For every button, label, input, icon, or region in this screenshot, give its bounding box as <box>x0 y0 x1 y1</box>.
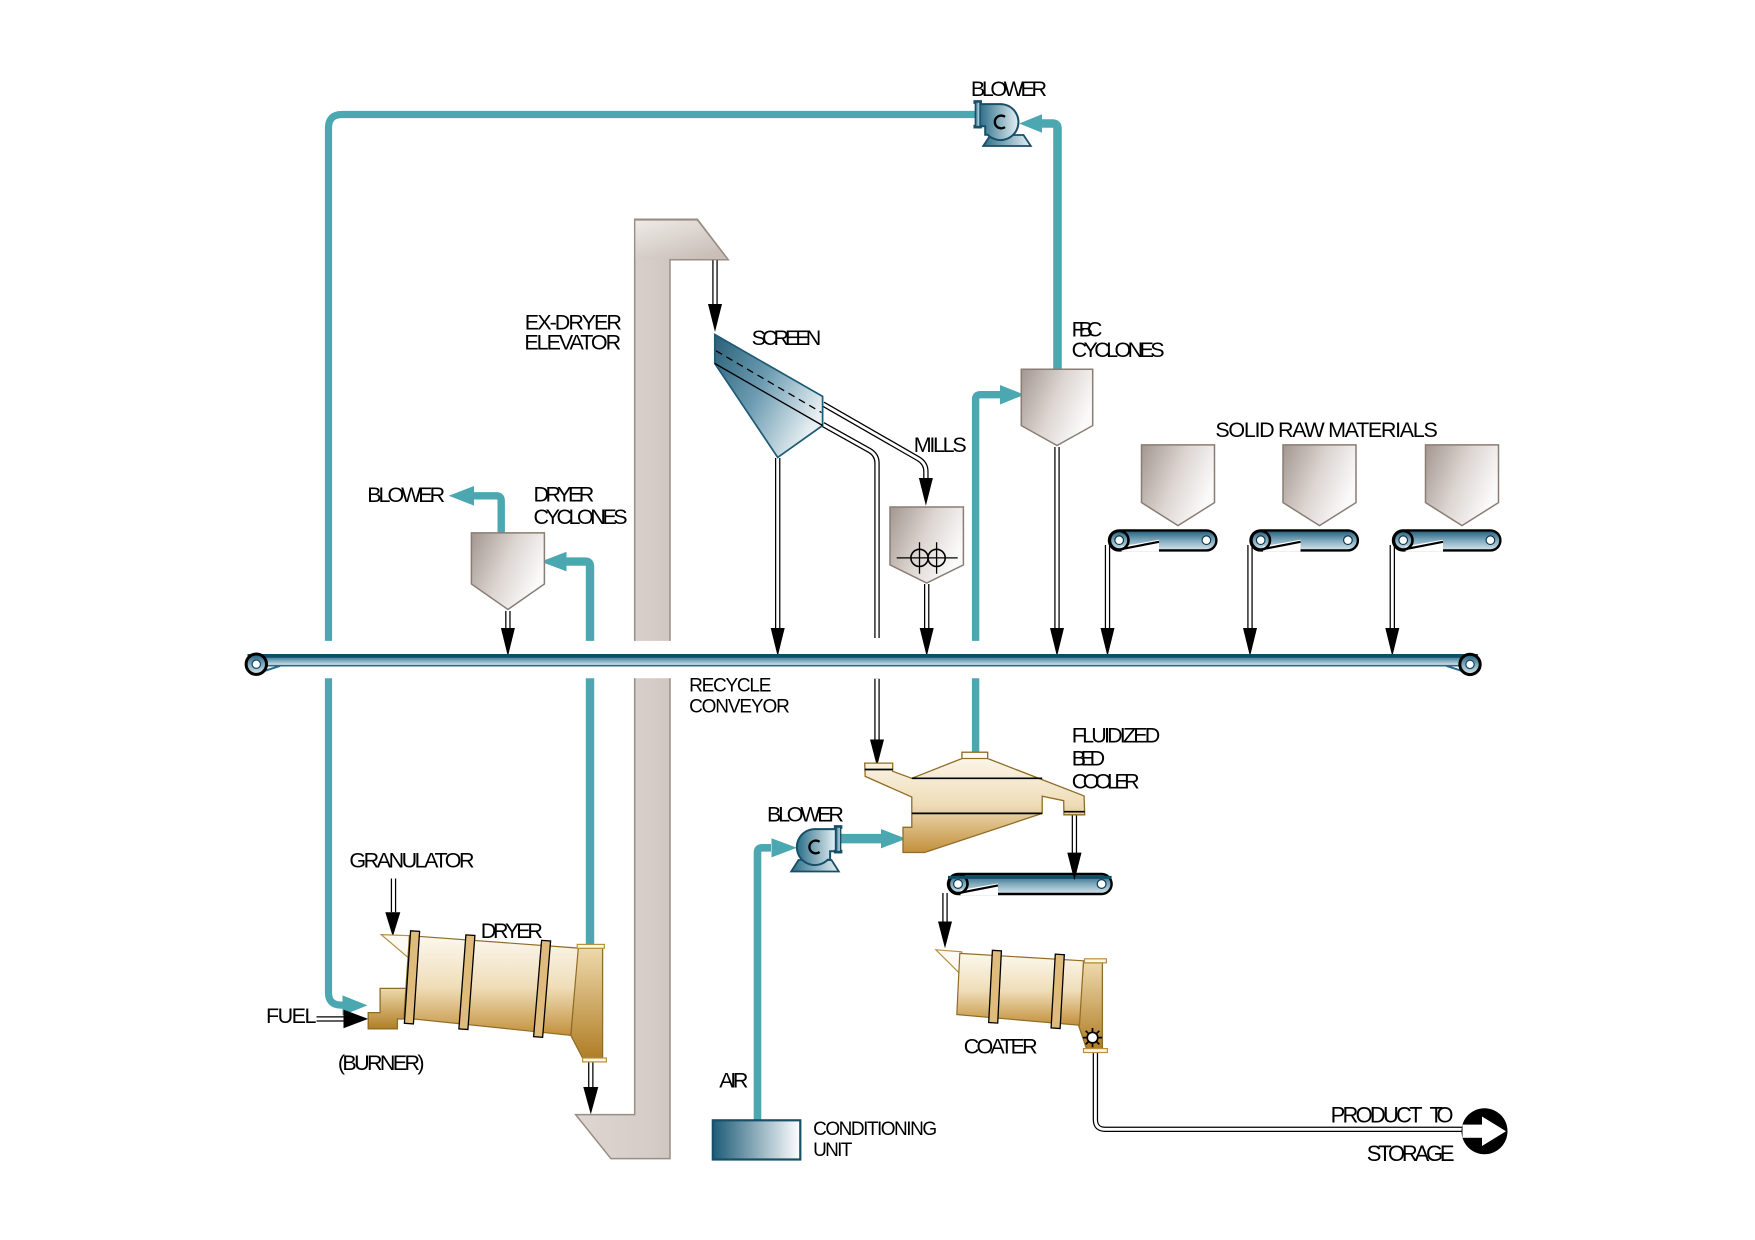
svg-text:DRYER: DRYER <box>534 482 595 506</box>
svg-text:COOLER: COOLER <box>1072 770 1140 794</box>
svg-text:BLOWER: BLOWER <box>367 483 445 507</box>
svg-text:MILLS: MILLS <box>914 433 967 457</box>
svg-text:BLOWER: BLOWER <box>971 77 1047 101</box>
svg-text:ELEVATOR: ELEVATOR <box>524 330 621 354</box>
svg-text:STORAGE: STORAGE <box>1367 1141 1455 1166</box>
svg-text:CYCLONES: CYCLONES <box>1072 338 1165 362</box>
svg-text:TO: TO <box>1430 1103 1454 1128</box>
svg-text:UNIT: UNIT <box>813 1140 853 1161</box>
svg-text:BED: BED <box>1072 746 1105 770</box>
svg-text:AIR: AIR <box>719 1069 748 1093</box>
svg-text:RECYCLE: RECYCLE <box>689 675 771 696</box>
svg-text:COATER: COATER <box>964 1035 1038 1059</box>
svg-text:(BURNER): (BURNER) <box>338 1051 425 1075</box>
svg-text:FUEL: FUEL <box>266 1004 317 1028</box>
svg-text:FLUIDIZED: FLUIDIZED <box>1072 723 1161 747</box>
svg-text:SCREEN: SCREEN <box>752 326 822 350</box>
svg-text:PRODUCT: PRODUCT <box>1331 1103 1423 1128</box>
svg-text:CONDITIONING: CONDITIONING <box>813 1119 937 1140</box>
svg-text:CONVEYOR: CONVEYOR <box>689 697 790 718</box>
svg-text:GRANULATOR: GRANULATOR <box>349 849 474 873</box>
svg-text:DRYER: DRYER <box>481 919 543 943</box>
svg-text:CYCLONES: CYCLONES <box>534 505 628 529</box>
svg-text:BLOWER: BLOWER <box>767 802 844 826</box>
svg-text:SOLID RAW MATERIALS: SOLID RAW MATERIALS <box>1215 418 1437 442</box>
